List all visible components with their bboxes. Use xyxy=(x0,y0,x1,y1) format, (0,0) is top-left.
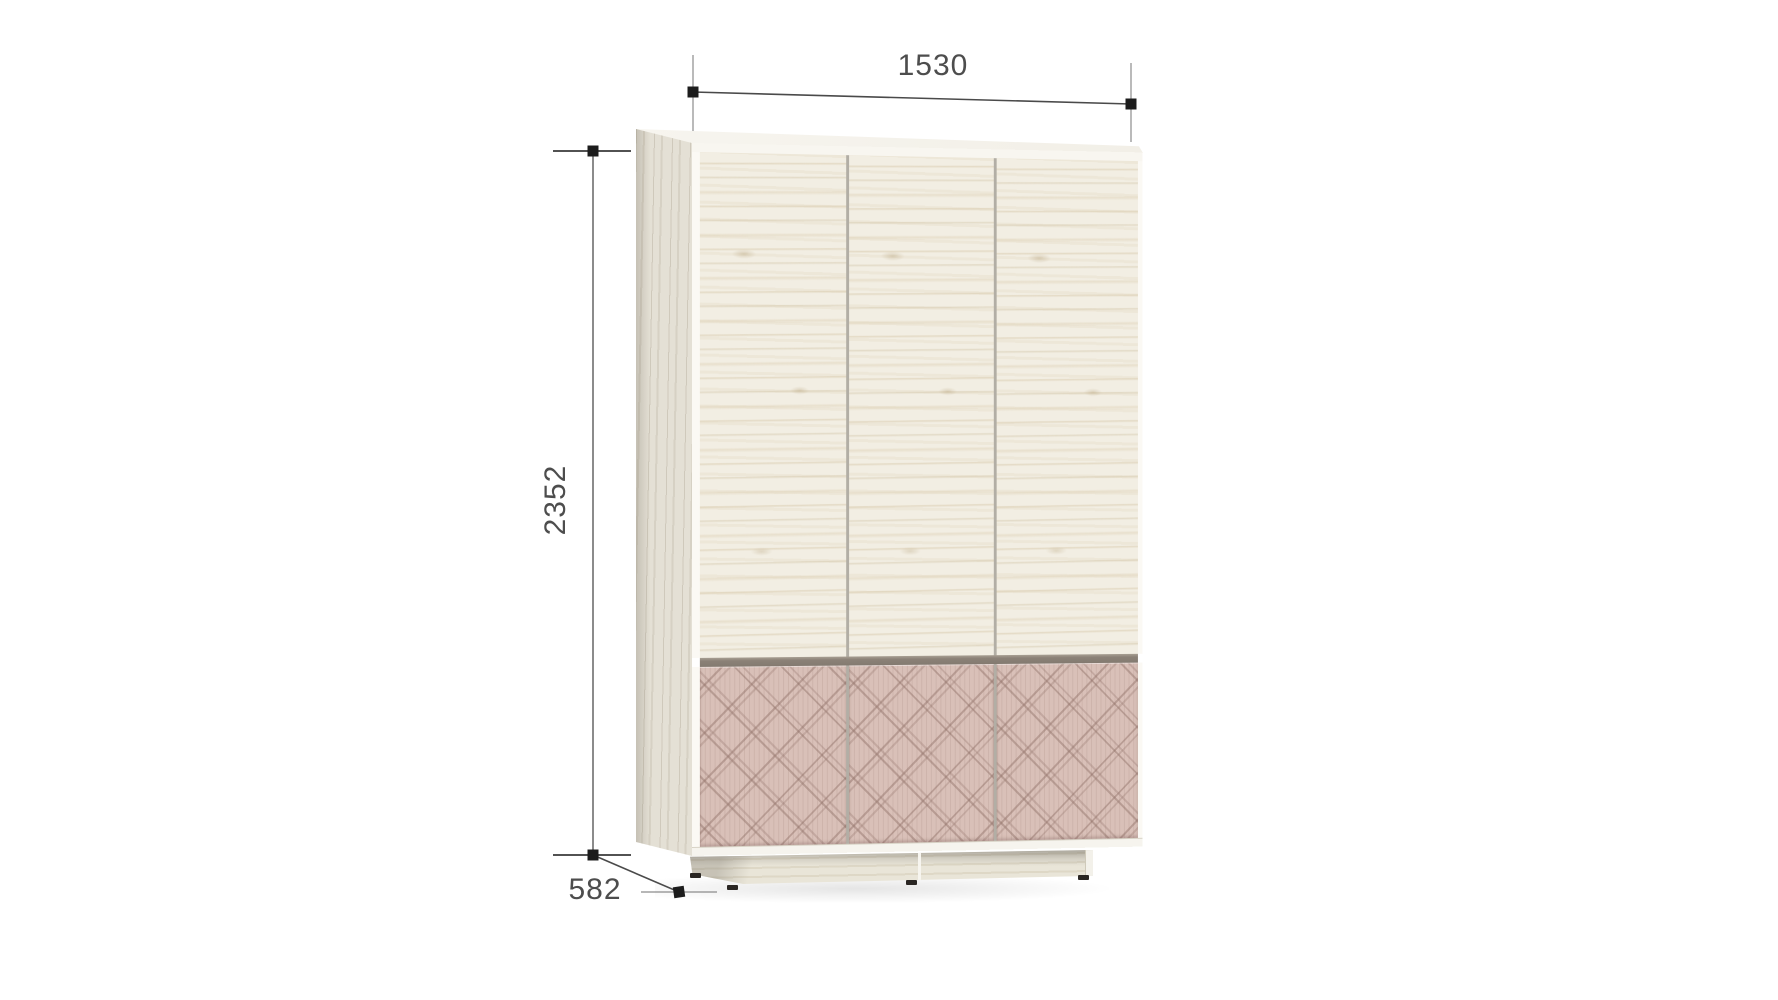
dimension-marker xyxy=(1126,99,1137,110)
wardrobe-door-right xyxy=(996,158,1138,655)
wardrobe-door-middle xyxy=(849,155,993,656)
depth-dimension-label: 582 xyxy=(550,873,640,907)
wardrobe-side-panel xyxy=(636,129,692,856)
plinth-divider xyxy=(918,850,921,884)
wardrobe-foot xyxy=(1078,875,1089,880)
dimension-diagram-canvas: 1530 2352 582 xyxy=(0,0,1778,1000)
dimension-marker xyxy=(588,146,599,157)
wardrobe-foot xyxy=(906,880,917,885)
dimension-marker xyxy=(688,87,699,98)
wardrobe-doors-row xyxy=(692,152,1143,658)
wardrobe-drawers-row xyxy=(692,663,1143,847)
wardrobe-foot xyxy=(690,873,701,878)
width-dimension-label: 1530 xyxy=(868,49,998,83)
wardrobe-foot xyxy=(727,885,738,890)
width-dimension-line xyxy=(693,92,1131,104)
height-dimension-label: 2352 xyxy=(536,420,576,580)
wardrobe-door-left xyxy=(700,152,847,658)
drawer-front-left xyxy=(700,665,847,846)
drawer-front-right xyxy=(996,663,1138,841)
dimension-marker xyxy=(588,850,599,861)
drawer-front-middle xyxy=(849,664,993,844)
wardrobe-front xyxy=(692,143,1143,855)
